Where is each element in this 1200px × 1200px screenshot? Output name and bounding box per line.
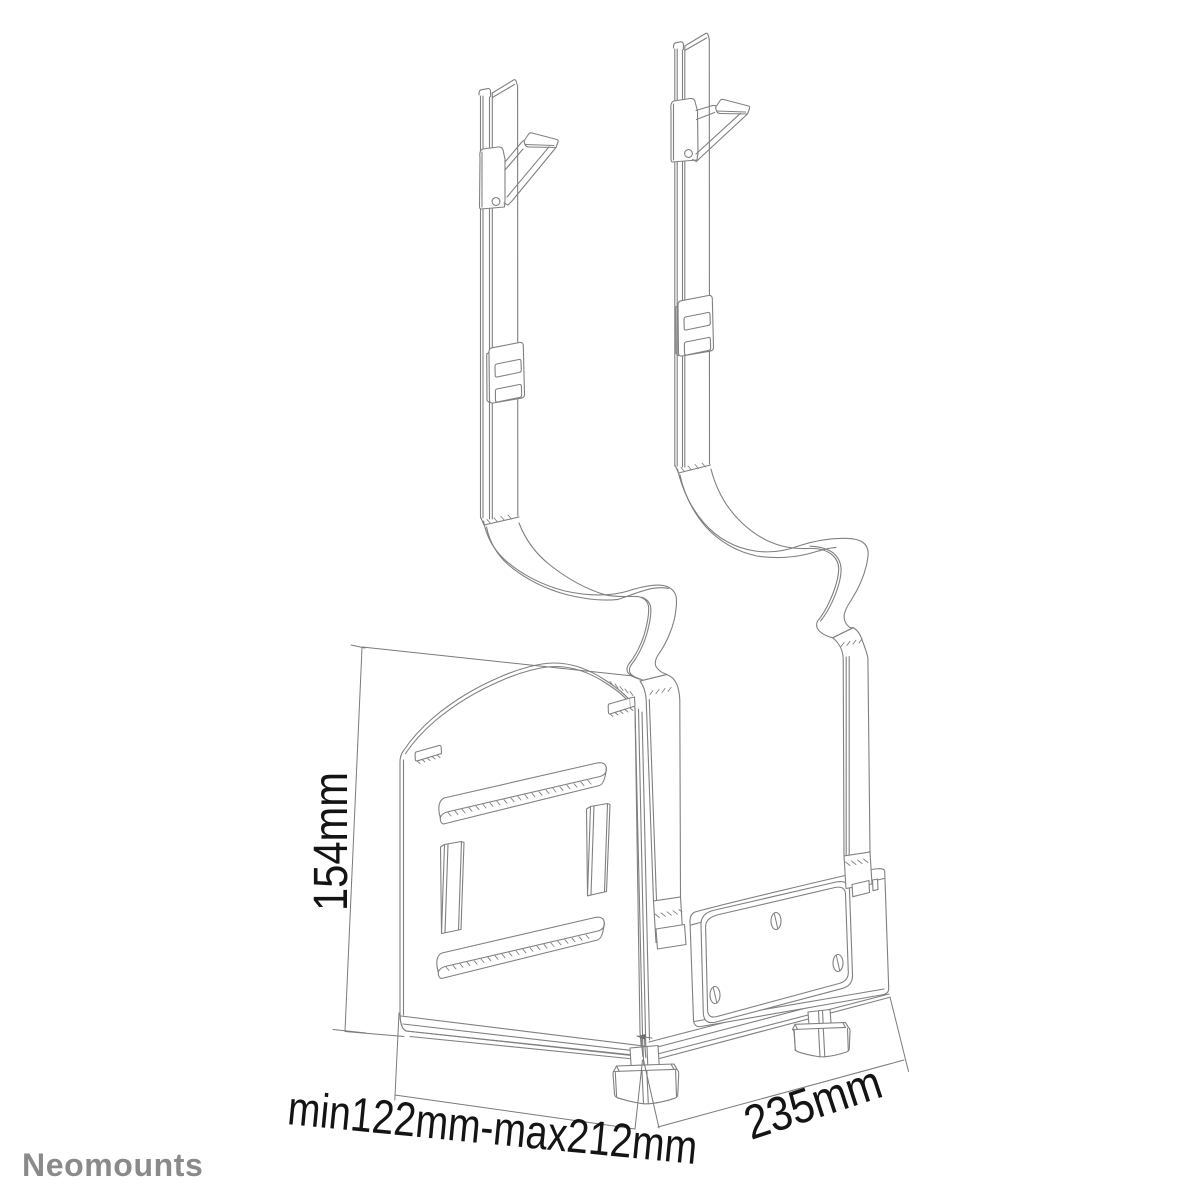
svg-text:Neomounts: Neomounts <box>22 1147 203 1183</box>
svg-text:154mm: 154mm <box>305 772 358 911</box>
